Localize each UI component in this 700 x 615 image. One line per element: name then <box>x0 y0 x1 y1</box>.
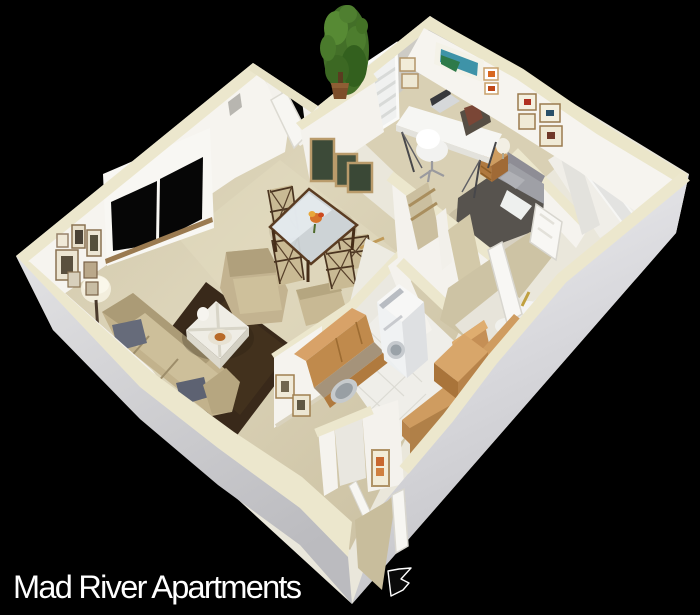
svg-text:Mad River Apartments: Mad River Apartments <box>13 569 302 605</box>
